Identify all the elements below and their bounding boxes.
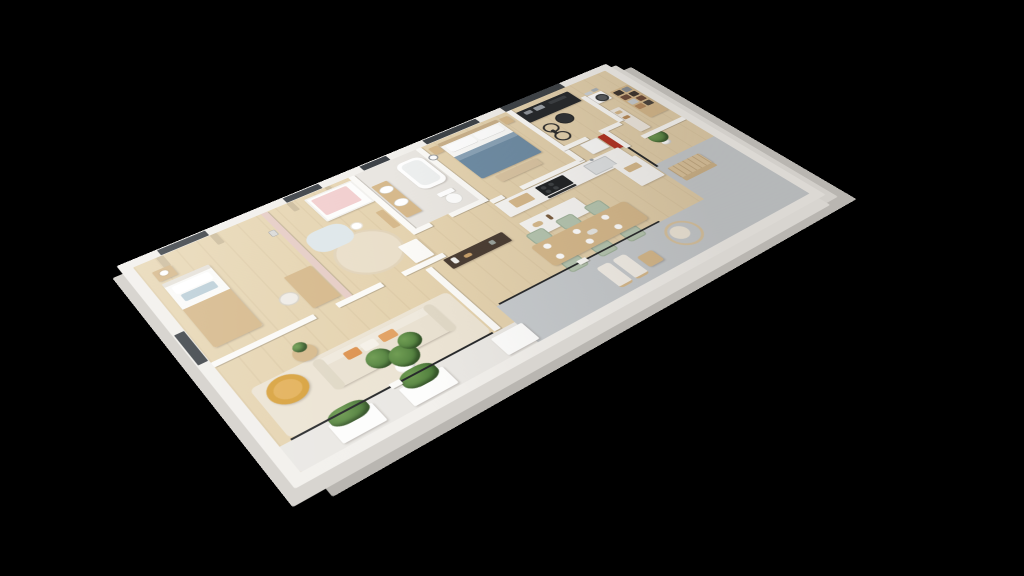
- plate-1: [542, 243, 554, 250]
- console-table: [443, 232, 512, 269]
- plate-6: [613, 223, 624, 230]
- desk-shelf-items: [548, 95, 568, 104]
- washer-door: [593, 93, 612, 103]
- sink-left: [377, 184, 397, 195]
- floor-plan: [116, 64, 825, 489]
- egg-chair-cushion: [665, 224, 694, 242]
- wood-tray: [623, 162, 643, 173]
- apartment-interior: [133, 71, 809, 473]
- plate-3: [600, 214, 611, 221]
- monitor: [523, 110, 534, 115]
- sink-right: [391, 196, 411, 208]
- perspective-scene: [0, 0, 1024, 576]
- burner-3: [545, 189, 553, 194]
- island-bottle: [545, 214, 554, 220]
- scene-background: [0, 0, 1024, 576]
- plate-2: [571, 228, 582, 235]
- nursery-curtain-left: [286, 201, 300, 211]
- plate-5: [584, 238, 595, 245]
- crib-pink-bedding: [311, 186, 363, 216]
- console-figure: [488, 240, 497, 246]
- console-vase: [450, 257, 461, 264]
- burner-4: [552, 186, 560, 191]
- console-bowl: [463, 252, 473, 258]
- center-bowl: [586, 228, 600, 236]
- cutting-board: [508, 192, 536, 207]
- plate-4: [554, 252, 566, 259]
- curtain-right: [210, 233, 226, 245]
- monitor-2: [533, 104, 546, 111]
- island-bowl: [531, 220, 545, 228]
